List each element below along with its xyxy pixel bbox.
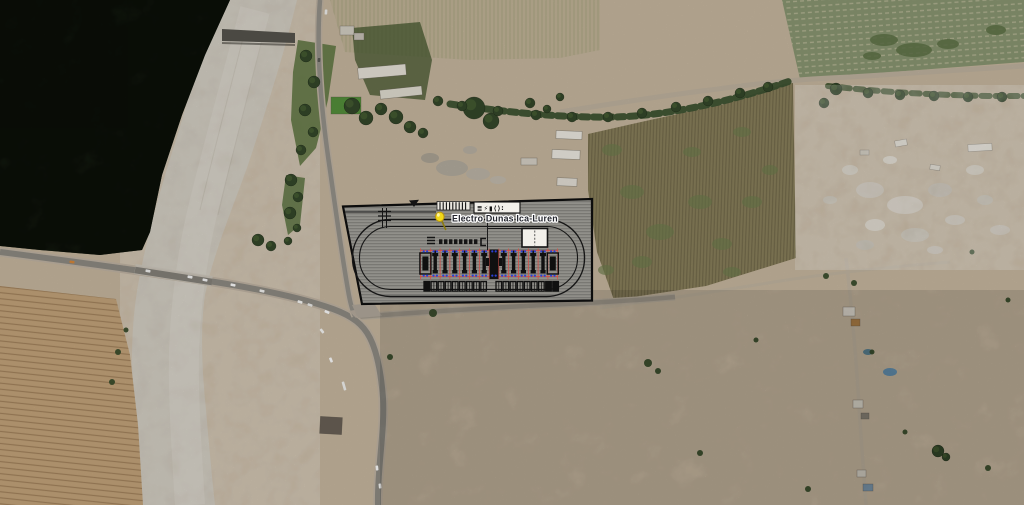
legend-glyphs: ≣⚡▮⟨⟩∶	[477, 205, 504, 213]
comb-structures	[437, 202, 470, 211]
placemark-label[interactable]: Electro Dunas Ica-Luren	[452, 214, 558, 224]
satellite-map[interactable]: ≣⚡▮⟨⟩∶ Electro Dunas Ica-Luren	[0, 0, 1024, 505]
map-canvas: ≣⚡▮⟨⟩∶ Electro Dunas Ica-Luren	[0, 0, 1024, 505]
